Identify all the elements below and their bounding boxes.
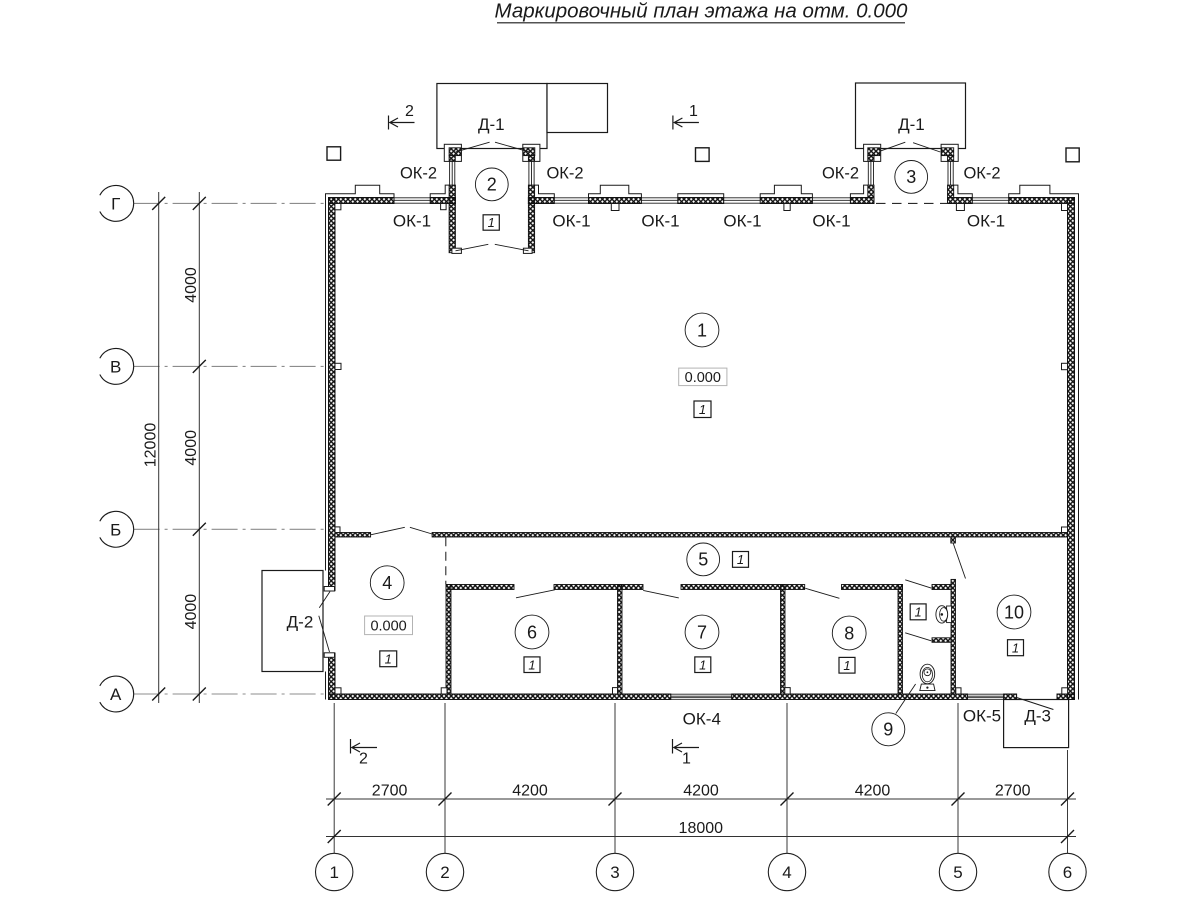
svg-text:ОК-4: ОК-4 (683, 710, 721, 729)
svg-text:Д-3: Д-3 (1024, 707, 1051, 726)
svg-text:10: 10 (1004, 602, 1024, 622)
svg-text:ОК-1: ОК-1 (641, 212, 679, 231)
svg-text:1: 1 (914, 605, 921, 620)
svg-text:12000: 12000 (143, 423, 160, 468)
svg-text:2: 2 (487, 175, 497, 195)
svg-text:2: 2 (405, 103, 414, 120)
svg-text:1: 1 (329, 863, 338, 882)
svg-text:Д-1: Д-1 (898, 115, 925, 134)
svg-text:1: 1 (699, 657, 706, 672)
svg-text:2: 2 (440, 863, 449, 882)
svg-text:3: 3 (906, 167, 916, 187)
svg-text:ОК-1: ОК-1 (723, 212, 761, 231)
svg-text:1: 1 (737, 552, 744, 567)
svg-text:Б: Б (110, 520, 121, 539)
svg-text:18000: 18000 (679, 820, 724, 837)
svg-text:ОК-1: ОК-1 (552, 212, 590, 231)
svg-text:0.000: 0.000 (370, 618, 406, 634)
svg-text:2700: 2700 (995, 782, 1031, 799)
svg-text:1: 1 (689, 103, 698, 120)
svg-text:4000: 4000 (183, 594, 200, 630)
svg-text:ОК-5: ОК-5 (963, 707, 1001, 726)
svg-text:1: 1 (528, 657, 535, 672)
svg-text:1: 1 (843, 658, 850, 673)
svg-text:Г: Г (111, 194, 120, 213)
svg-text:1: 1 (1012, 640, 1019, 655)
svg-text:4200: 4200 (855, 782, 891, 799)
svg-text:ОК-2: ОК-2 (963, 164, 1000, 182)
svg-text:6: 6 (1063, 863, 1072, 882)
svg-text:Д-2: Д-2 (287, 613, 314, 632)
svg-text:В: В (110, 357, 121, 376)
svg-text:ОК-1: ОК-1 (393, 212, 431, 231)
svg-text:5: 5 (953, 863, 962, 882)
svg-text:4000: 4000 (183, 430, 200, 466)
svg-text:1: 1 (385, 652, 392, 667)
svg-text:Д-1: Д-1 (478, 115, 505, 134)
svg-text:1: 1 (699, 402, 706, 417)
svg-text:5: 5 (698, 550, 708, 570)
svg-text:1: 1 (488, 215, 495, 230)
svg-text:ОК-1: ОК-1 (967, 212, 1005, 231)
svg-text:4: 4 (782, 863, 791, 882)
svg-text:7: 7 (697, 622, 707, 642)
svg-text:ОК-2: ОК-2 (822, 164, 859, 182)
svg-text:ОК-2: ОК-2 (546, 164, 583, 182)
svg-text:ОК-1: ОК-1 (812, 212, 850, 231)
svg-text:3: 3 (610, 863, 619, 882)
svg-text:2: 2 (359, 751, 368, 768)
svg-text:1: 1 (682, 751, 691, 768)
svg-text:4200: 4200 (683, 782, 719, 799)
svg-text:6: 6 (527, 622, 537, 642)
svg-text:4200: 4200 (512, 782, 548, 799)
svg-text:ОК-2: ОК-2 (400, 164, 437, 182)
svg-text:2700: 2700 (372, 782, 408, 799)
svg-text:8: 8 (844, 623, 854, 643)
svg-text:4: 4 (382, 573, 392, 593)
svg-text:А: А (110, 685, 122, 704)
svg-text:9: 9 (883, 720, 893, 740)
svg-text:4000: 4000 (183, 267, 200, 303)
svg-text:0.000: 0.000 (685, 370, 721, 386)
svg-text:Маркировочный план этажа на от: Маркировочный план этажа на отм. 0.000 (495, 0, 909, 23)
svg-text:1: 1 (697, 320, 707, 340)
